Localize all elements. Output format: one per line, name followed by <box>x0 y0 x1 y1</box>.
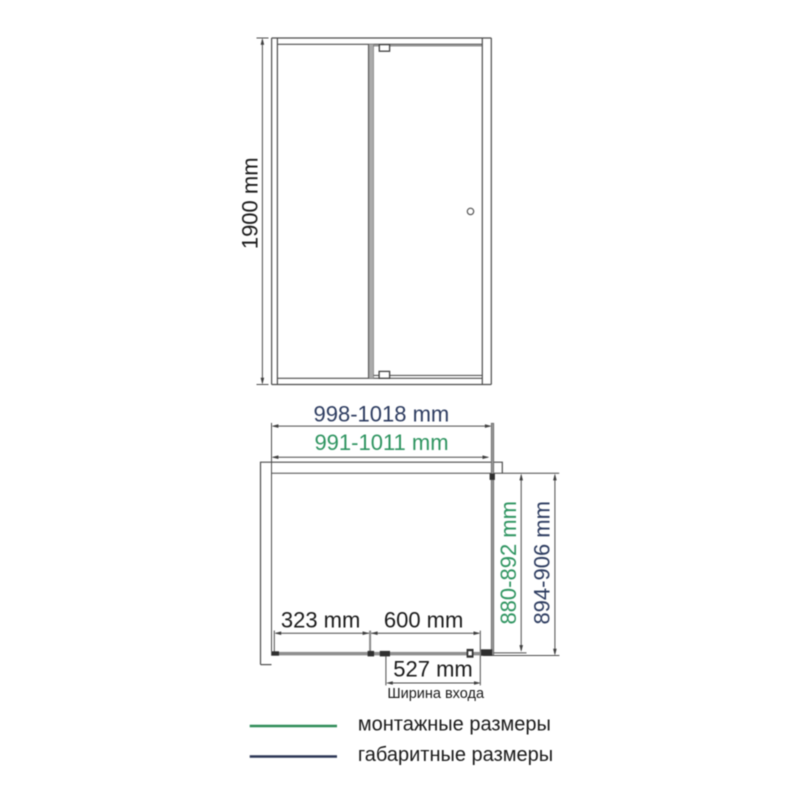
svg-text:527 mm: 527 mm <box>393 656 472 681</box>
svg-text:880-892 mm: 880-892 mm <box>496 501 521 625</box>
svg-text:323 mm: 323 mm <box>281 608 360 633</box>
svg-text:998-1018 mm: 998-1018 mm <box>314 402 450 427</box>
svg-text:600 mm: 600 mm <box>384 608 463 633</box>
svg-text:габаритные размеры: габаритные размеры <box>358 744 553 766</box>
svg-text:894-906 mm: 894-906 mm <box>530 501 555 625</box>
svg-text:1900 mm: 1900 mm <box>238 157 263 249</box>
svg-text:Ширина входа: Ширина входа <box>387 686 485 702</box>
svg-text:991-1011 mm: 991-1011 mm <box>314 430 448 455</box>
svg-text:монтажные размеры: монтажные размеры <box>358 713 551 735</box>
